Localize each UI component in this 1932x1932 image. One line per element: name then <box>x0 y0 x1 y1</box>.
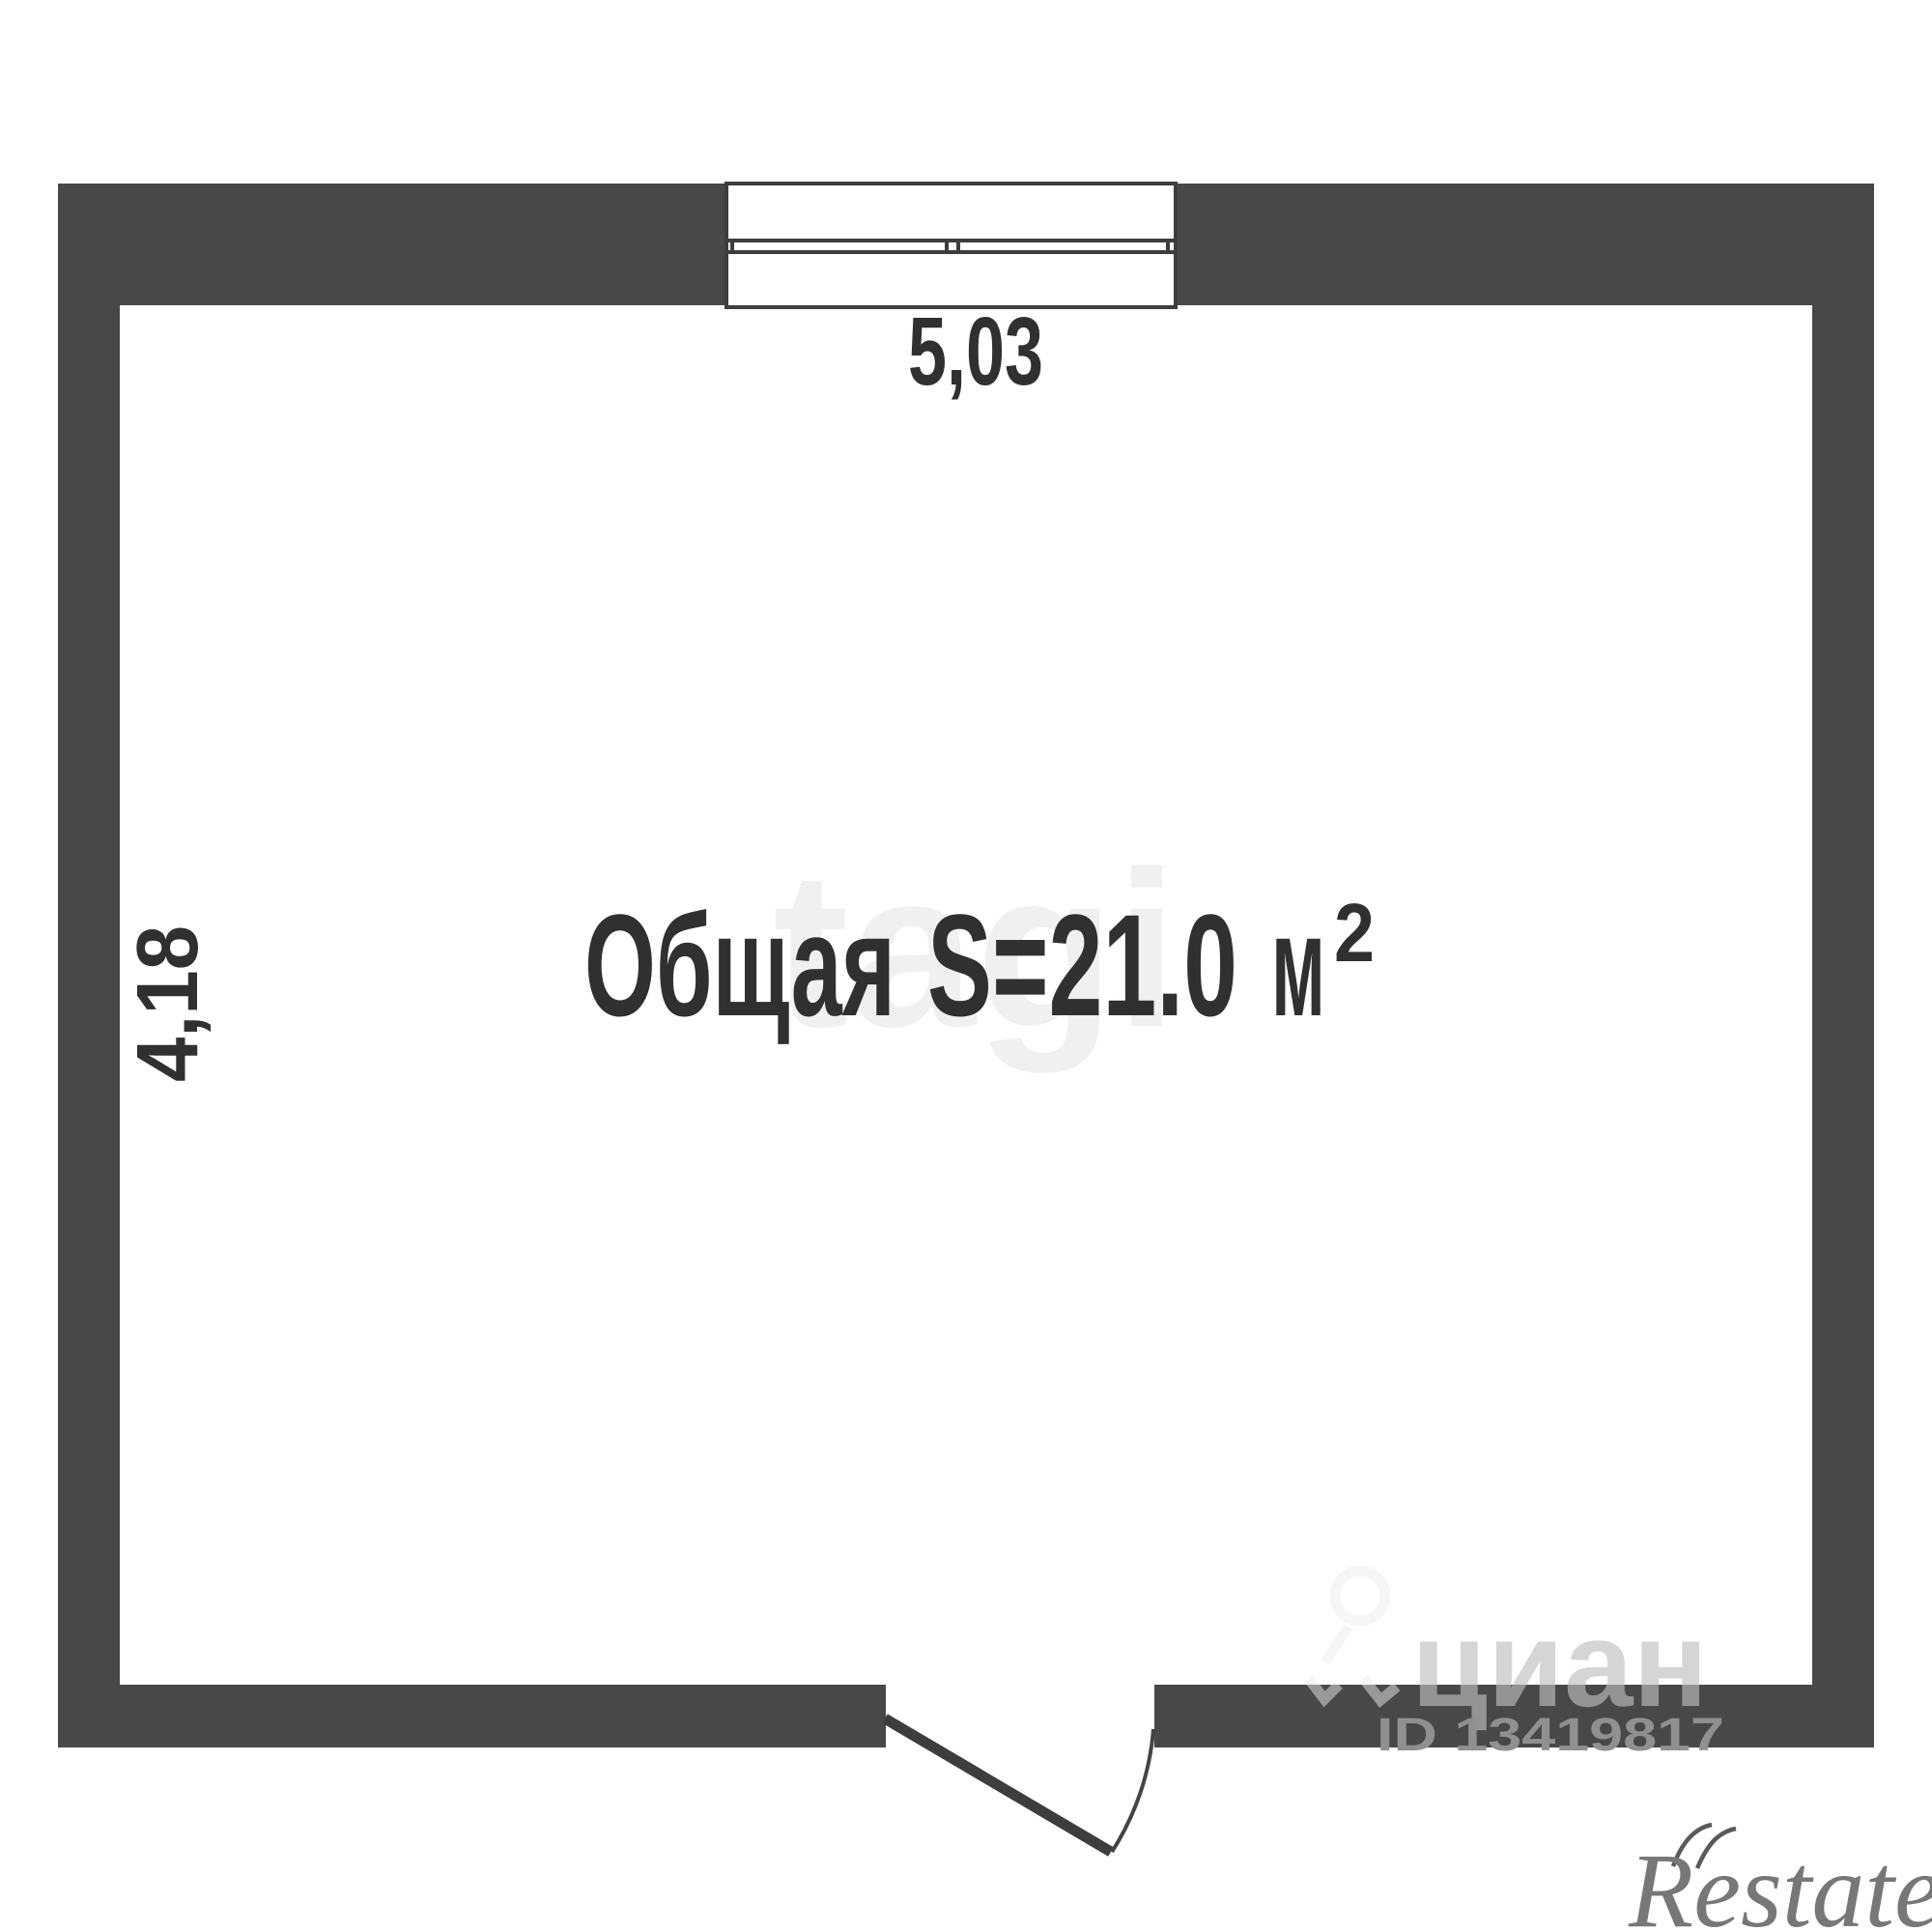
svg-text:м: м <box>1271 884 1325 1046</box>
svg-text:Restate: Restate <box>1628 1832 1932 1932</box>
svg-text:S=21.0: S=21.0 <box>927 884 1237 1046</box>
svg-text:5,03: 5,03 <box>908 298 1043 406</box>
svg-text:Общая: Общая <box>584 884 895 1046</box>
svg-text:4,18: 4,18 <box>120 925 216 1082</box>
svg-text:ID 13419817: ID 13419817 <box>1377 1710 1724 1761</box>
svg-text:2: 2 <box>1334 888 1375 980</box>
